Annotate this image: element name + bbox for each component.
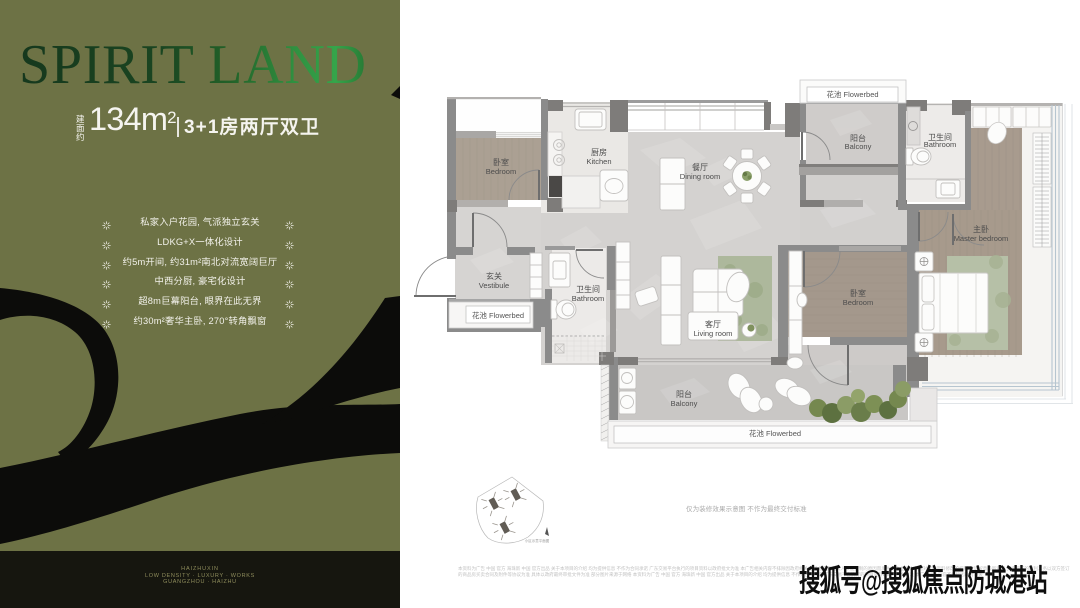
svg-text:卧室: 卧室 — [493, 157, 509, 167]
svg-text:小区示意平面图: 小区示意平面图 — [525, 538, 550, 543]
svg-text:Bedroom: Bedroom — [843, 298, 873, 307]
svg-text:玄关: 玄关 — [486, 271, 502, 281]
svg-text:Balcony: Balcony — [845, 142, 872, 151]
svg-text:餐厅: 餐厅 — [692, 163, 708, 172]
svg-text:Dining room: Dining room — [680, 172, 720, 181]
svg-text:客厅: 客厅 — [705, 319, 721, 329]
svg-text:Vestibule: Vestibule — [479, 281, 509, 290]
svg-text:花池 Flowerbed: 花池 Flowerbed — [749, 428, 801, 438]
svg-text:Kitchen: Kitchen — [586, 157, 611, 166]
svg-text:Living room: Living room — [694, 329, 733, 338]
svg-text:Master bedroom: Master bedroom — [954, 234, 1009, 243]
svg-text:阳台: 阳台 — [676, 389, 692, 399]
svg-text:主卧: 主卧 — [973, 224, 989, 234]
svg-text:Bathroom: Bathroom — [572, 294, 605, 303]
svg-text:花池 Flowerbed: 花池 Flowerbed — [826, 89, 878, 99]
svg-text:Bedroom: Bedroom — [486, 167, 516, 176]
svg-text:厨房: 厨房 — [591, 147, 607, 157]
svg-text:Bathroom: Bathroom — [924, 140, 957, 149]
svg-text:Balcony: Balcony — [671, 399, 698, 408]
svg-text:卫生间: 卫生间 — [576, 284, 600, 294]
svg-text:卧室: 卧室 — [850, 288, 866, 298]
svg-text:花池 Flowerbed: 花池 Flowerbed — [472, 310, 524, 320]
